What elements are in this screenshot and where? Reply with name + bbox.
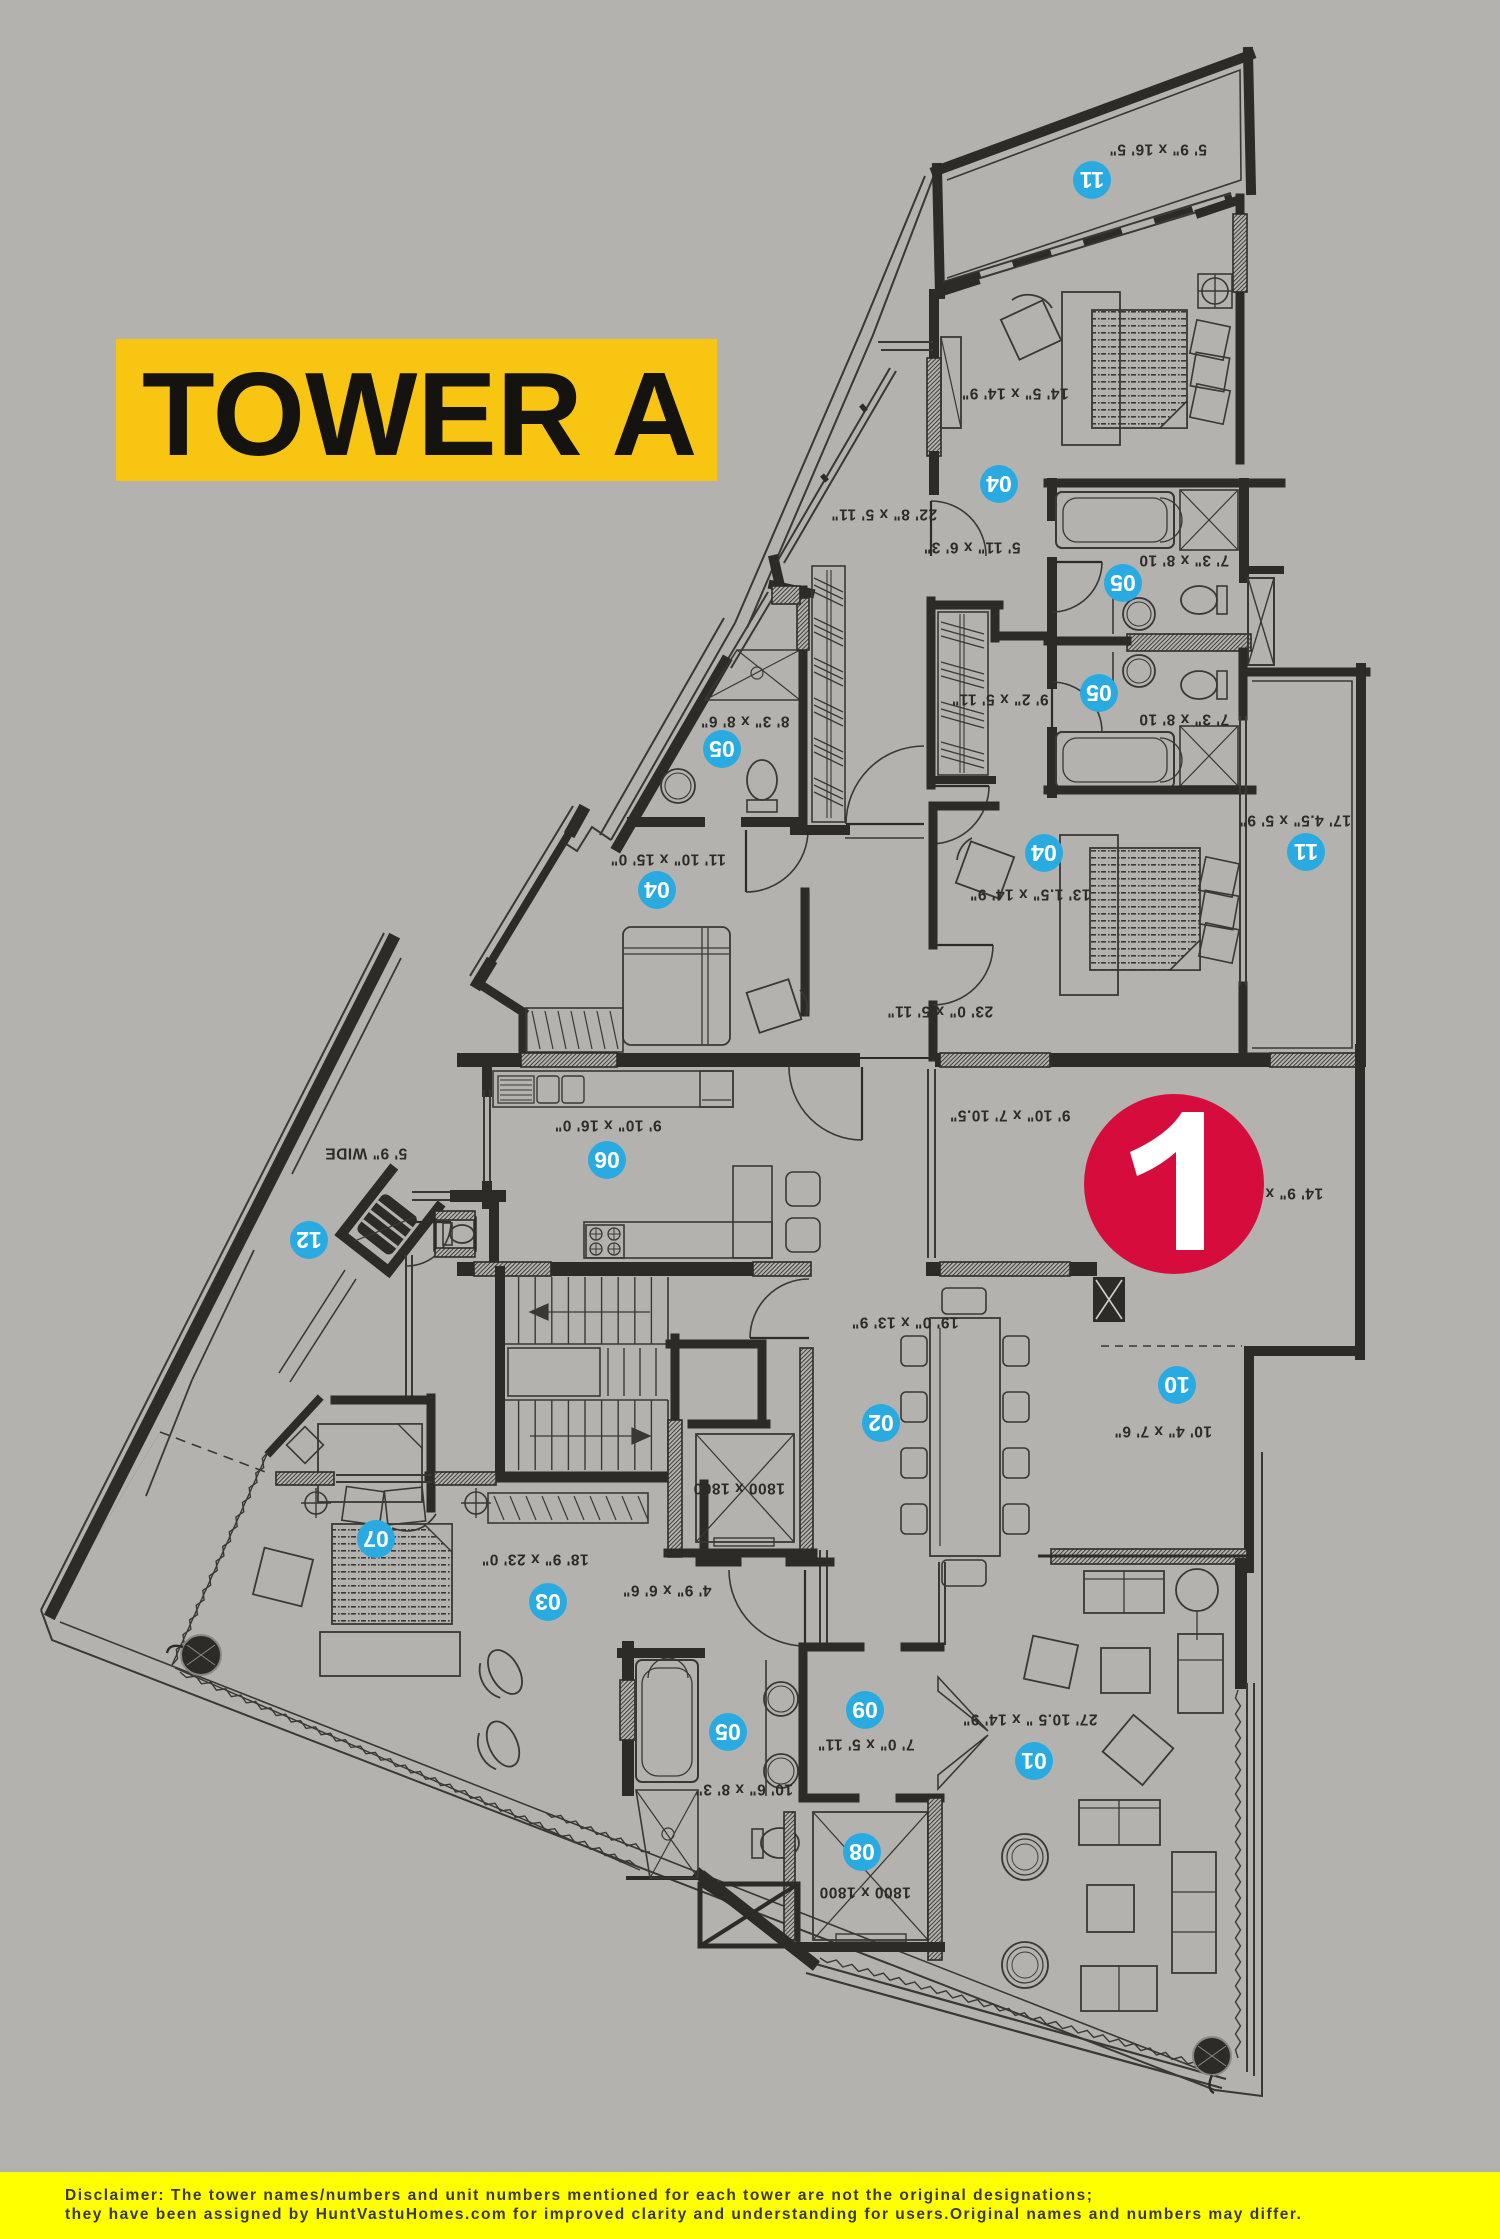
svg-text:05: 05: [1110, 570, 1136, 596]
svg-text:05: 05: [709, 736, 735, 762]
svg-text:9' 10" x 7' 10.5": 9' 10" x 7' 10.5": [949, 1107, 1070, 1124]
svg-text:5' 9" WIDE: 5' 9" WIDE: [325, 1145, 407, 1162]
svg-text:07: 07: [363, 1526, 389, 1552]
svg-text:01: 01: [1021, 1748, 1047, 1774]
svg-text:10' 6" x 8' 3": 10' 6" x 8' 3": [695, 1781, 793, 1798]
svg-text:7' 3" x 8' 10: 7' 3" x 8' 10: [1139, 552, 1229, 569]
svg-text:13' 1.5" x 14' 9": 13' 1.5" x 14' 9": [969, 886, 1090, 903]
svg-text:1800 x 1800: 1800 x 1800: [819, 1884, 911, 1901]
svg-text:5' 11" x 6' 3": 5' 11" x 6' 3": [923, 539, 1020, 556]
svg-text:8' 3" x 8' 6": 8' 3" x 8' 6": [701, 713, 790, 730]
svg-text:11' 10" x 15' 0": 11' 10" x 15' 0": [610, 851, 725, 868]
svg-text:12: 12: [296, 1227, 322, 1253]
svg-text:17' 4.5" x 5' 9": 17' 4.5" x 5' 9": [1239, 812, 1351, 829]
svg-text:they have been assigned by Hun: they have been assigned by HuntVastuHome…: [65, 2206, 1302, 2223]
svg-text:Disclaimer: The tower names/nu: Disclaimer: The tower names/numbers and …: [65, 2187, 1093, 2204]
svg-text:7' 0" x 5' 11": 7' 0" x 5' 11": [817, 1736, 914, 1753]
svg-text:08: 08: [849, 1839, 875, 1865]
svg-text:10: 10: [1164, 1372, 1190, 1398]
svg-text:7' 3" x 8' 10: 7' 3" x 8' 10: [1139, 711, 1229, 728]
svg-text:9' 10" x 16' 0": 9' 10" x 16' 0": [554, 1117, 661, 1134]
svg-text:02: 02: [868, 1410, 894, 1436]
svg-text:14' 5" x 14' 9": 14' 5" x 14' 9": [961, 385, 1068, 402]
svg-text:11: 11: [1080, 167, 1105, 193]
svg-text:05: 05: [715, 1719, 741, 1745]
svg-text:19' 0" x 13' 9": 19' 0" x 13' 9": [851, 1314, 958, 1331]
svg-text:04: 04: [1031, 840, 1057, 866]
svg-text:11: 11: [1294, 839, 1319, 865]
svg-text:27' 10.5 " x 14' 9": 27' 10.5 " x 14' 9": [963, 1711, 1098, 1728]
svg-text:9' 2" x 5' 11": 9' 2" x 5' 11": [951, 691, 1048, 708]
svg-text:03: 03: [535, 1589, 561, 1615]
svg-text:22' 8" x 5' 11": 22' 8" x 5' 11": [831, 506, 937, 523]
svg-text:TOWER A: TOWER A: [142, 348, 697, 481]
svg-text:18' 9" x 23' 0": 18' 9" x 23' 0": [481, 1551, 588, 1568]
svg-text:1800 x 1800: 1800 x 1800: [693, 1480, 785, 1497]
svg-text:14' 9" x: 14' 9" x: [1265, 1185, 1323, 1202]
svg-text:09: 09: [852, 1697, 878, 1723]
svg-text:05: 05: [1086, 680, 1112, 706]
svg-text:5' 9" x 16' 5": 5' 9" x 16' 5": [1109, 141, 1207, 158]
svg-text:04: 04: [986, 471, 1012, 497]
svg-text:23' 0" x 5' 11": 23' 0" x 5' 11": [887, 1003, 993, 1020]
svg-text:06: 06: [594, 1147, 620, 1173]
svg-text:10' 4" x 7' 6": 10' 4" x 7' 6": [1114, 1423, 1212, 1440]
svg-text:4' 9" x 6' 6": 4' 9" x 6' 6": [623, 1582, 712, 1599]
svg-text:04: 04: [644, 877, 670, 903]
